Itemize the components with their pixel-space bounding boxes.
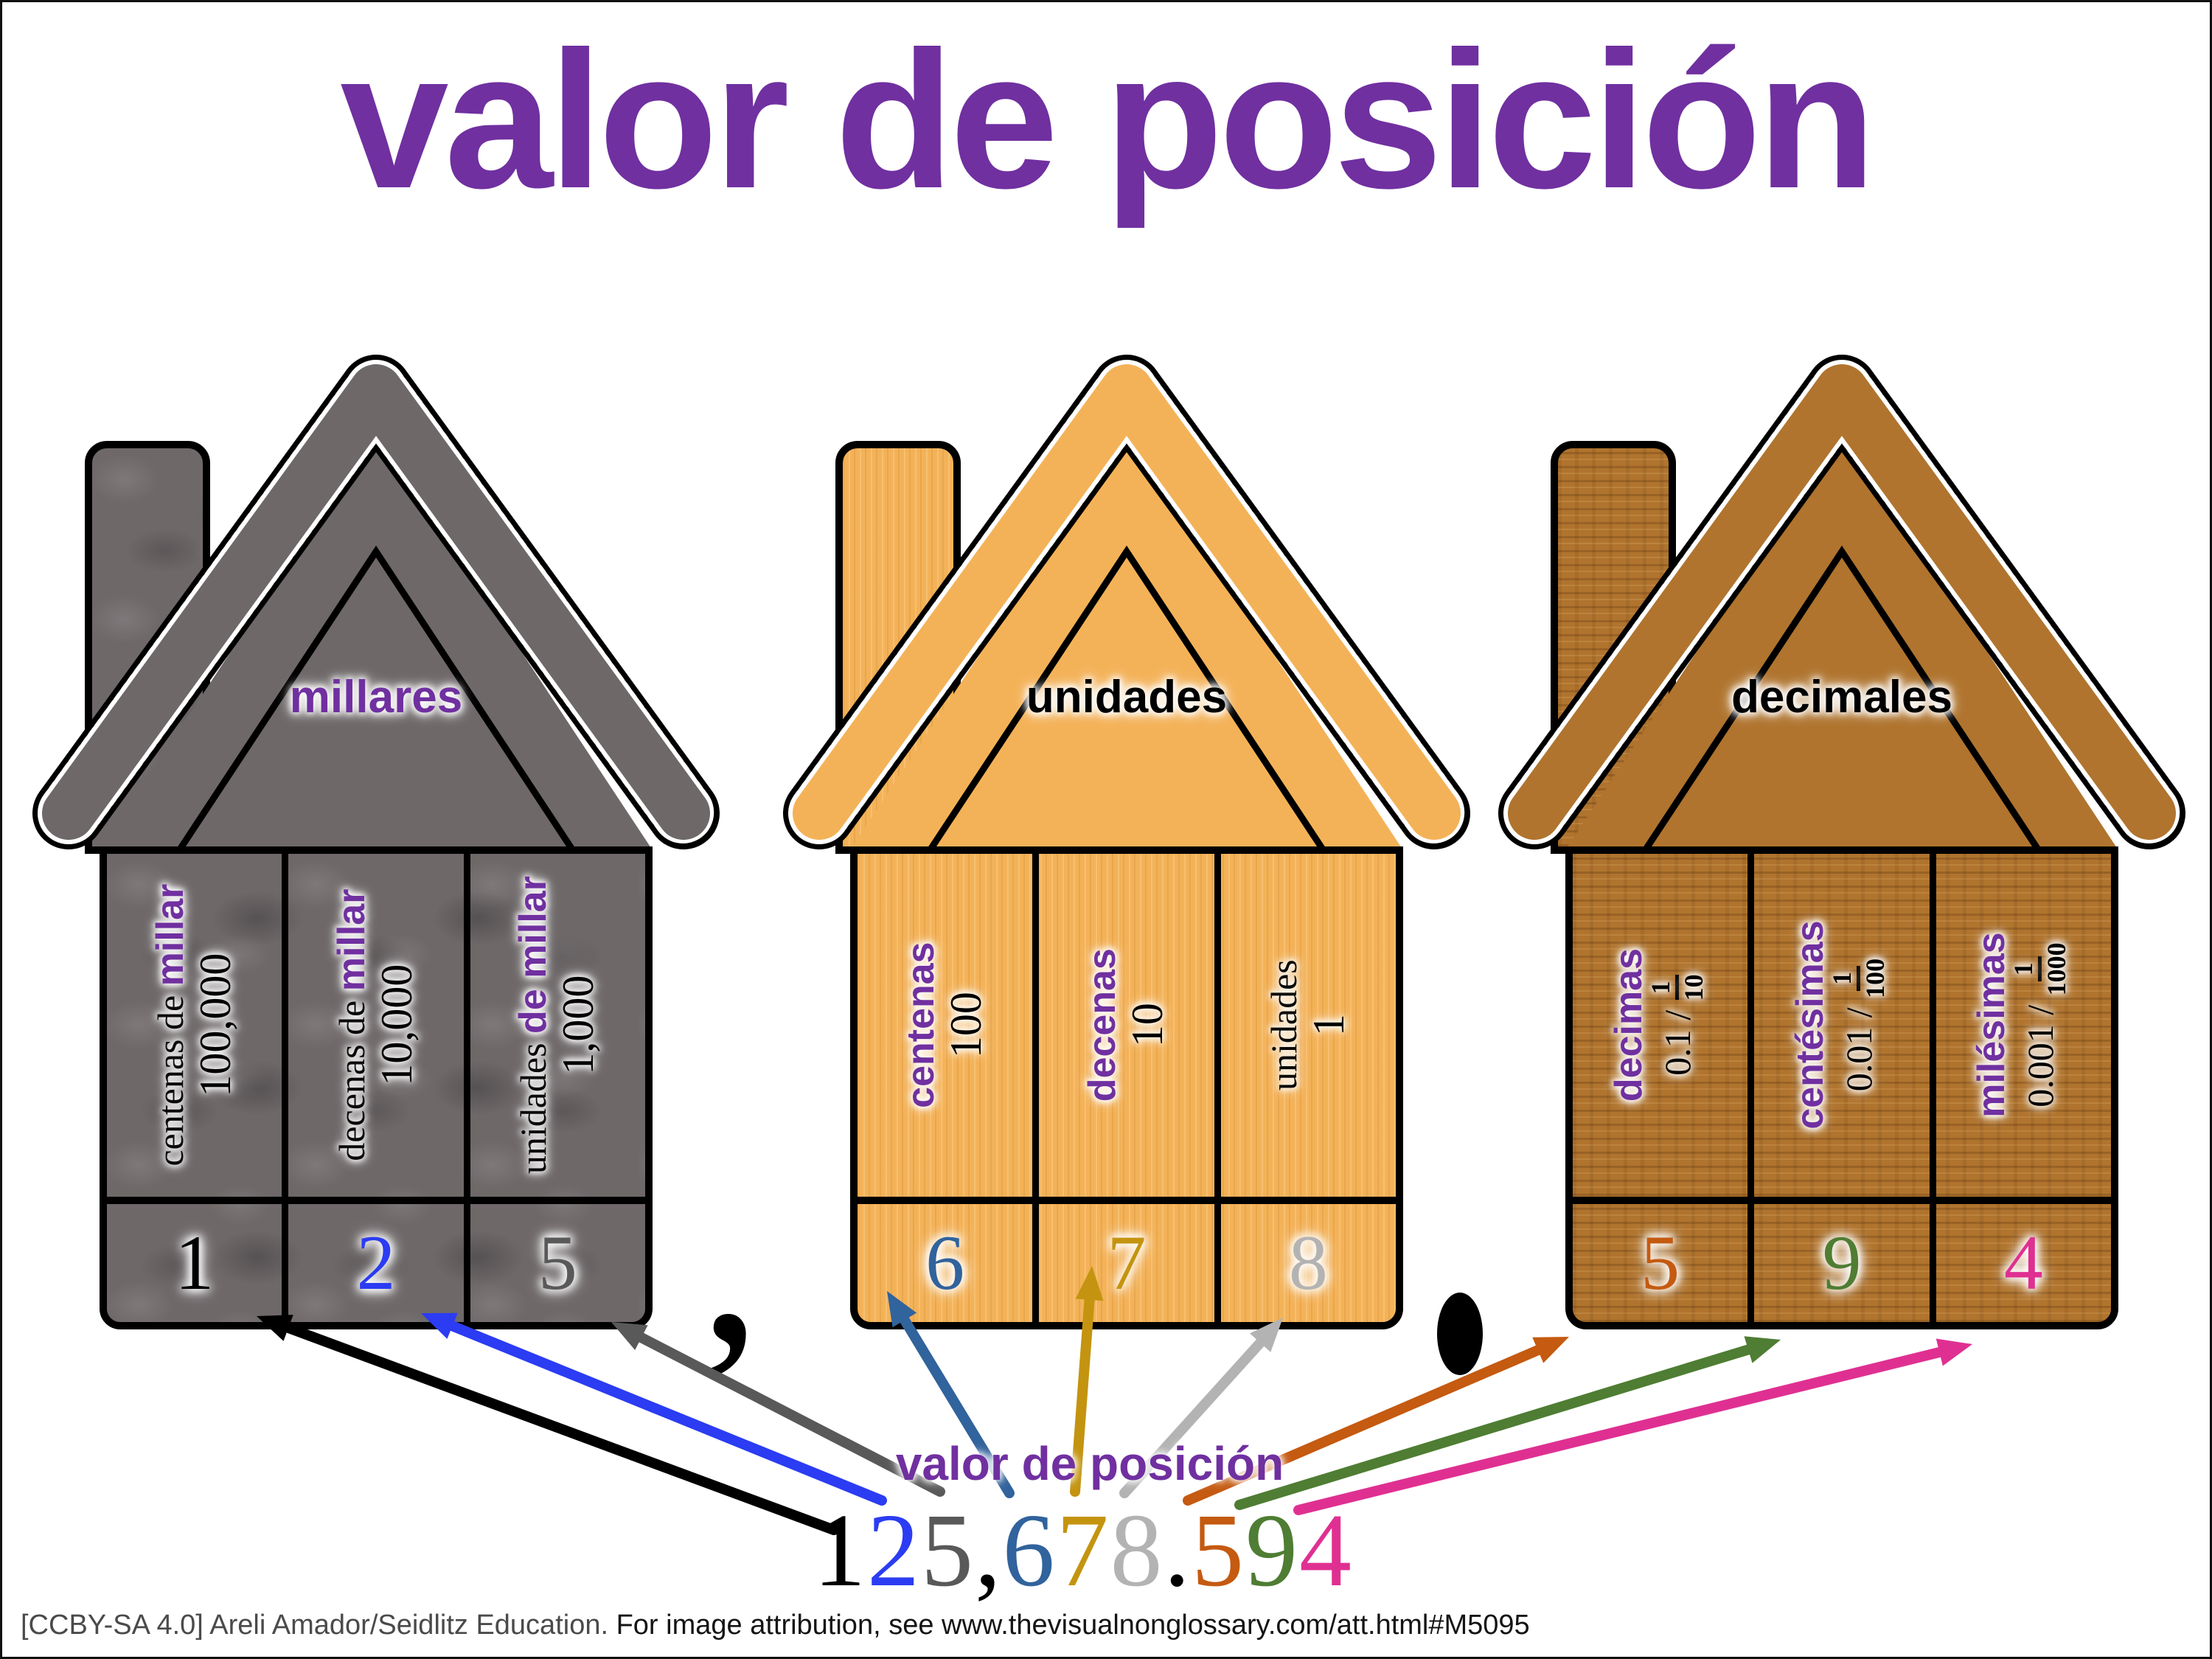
attribution-license: [CCBY-SA 4.0] Areli Amador/Seidlitz Educ… [21,1610,616,1641]
place-column-decenas-de-millar: decenas de millar 10,000 2 [282,854,463,1322]
number-digit: 8 [1110,1492,1164,1608]
place-name: milésimas [1972,933,2011,1119]
place-name: decimas [1610,948,1649,1102]
place-column-decimas: decimas 0.1 / 110 5 [1573,854,1747,1322]
arrow-head [1532,1337,1569,1363]
page-title: valor de posición [2,8,2210,233]
bottom-label: valor de posición [843,1436,1337,1491]
number-digit: 5 [921,1492,975,1608]
arrow-head [1936,1339,1972,1366]
place-column-centenas: centenas 100 6 [858,854,1032,1322]
digit-cell: 6 [858,1197,1032,1322]
house-body: centenas 100 6 decenas 10 7 unidades 1 8 [850,846,1403,1329]
decimal-point-dot [1437,1293,1483,1375]
attribution: [CCBY-SA 4.0] Areli Amador/Seidlitz Educ… [21,1610,1530,1641]
place-value-amount: 10,000 [375,964,420,1086]
digit-cell: 1 [107,1197,282,1322]
roof [1477,338,2207,854]
digit-cell: 4 [1936,1197,2111,1322]
place-value-number: 125,678.594 [813,1498,1353,1602]
place-name: unidades de millar [514,876,553,1174]
place-value-amount: 100 [944,992,989,1059]
place-value-amount: 0.01 / 1100 [1833,959,1893,1091]
fraction: 11000 [2010,943,2070,996]
house-body: decimas 0.1 / 110 5 centésimas 0.01 / 11… [1565,846,2118,1329]
place-value-amount: 0.1 / 110 [1652,975,1711,1076]
place-value-poster: valor de posición millares centenas de m… [0,0,2212,1659]
place-name: centenas de millar [151,884,190,1166]
arrow-line [1298,1350,1950,1510]
number-digit: 9 [1245,1492,1299,1608]
roof-label: unidades [762,671,1492,723]
place-name: decenas de millar [333,889,372,1161]
number-digit: 1 [813,1492,867,1608]
place-column-centesimas: centésimas 0.01 / 1100 9 [1747,854,1929,1322]
roof [11,338,741,854]
digit-cell: 5 [470,1197,645,1322]
fraction: 1100 [1829,959,1888,998]
place-column-unidades-de-millar: unidades de millar 1,000 5 [464,854,645,1322]
number-digit: 2 [867,1492,921,1608]
place-value-amount: 0.001 / 11000 [2014,943,2074,1107]
place-name: decenas [1083,948,1122,1102]
arrow-head [1744,1336,1781,1363]
roof-label: millares [11,671,741,723]
attribution-note: For image attribution, see www.thevisual… [616,1610,1530,1641]
place-column-decenas: decenas 10 7 [1032,854,1214,1322]
number-digit: 5 [1192,1492,1245,1608]
place-value-amount: 10 [1125,1004,1170,1048]
house-millares: millares centenas de millar 100,000 1 de… [11,338,741,1329]
place-value-amount: 100,000 [193,953,238,1097]
digit-cell: 5 [1573,1197,1747,1322]
roof-label: decimales [1477,671,2207,723]
fraction: 110 [1647,975,1707,1001]
digit-cell: 8 [1221,1197,1396,1322]
thousands-comma: , [699,1130,762,1381]
digit-cell: 9 [1754,1197,1929,1322]
number-digit: 4 [1299,1492,1353,1608]
house-unidades: unidades centenas 100 6 decenas 10 7 uni… [762,338,1492,1329]
digit-cell: 7 [1039,1197,1214,1322]
house-body: centenas de millar 100,000 1 decenas de … [100,846,653,1329]
place-name: centenas [902,942,941,1108]
place-column-milesimas: milésimas 0.001 / 11000 4 [1930,854,2111,1322]
house-decimales: decimales decimas 0.1 / 110 5 centésimas… [1477,338,2207,1329]
place-value-amount: 1,000 [556,975,601,1075]
digit-cell: 2 [288,1197,463,1322]
number-digit: 6 [1003,1492,1057,1608]
arrow-line [443,1322,882,1500]
place-name: centésimas [1791,921,1830,1130]
number-digit: 7 [1057,1492,1110,1608]
place-column-centenas-de-millar: centenas de millar 100,000 1 [107,854,282,1322]
place-name: unidades [1265,960,1304,1091]
number-digit: . [1164,1492,1192,1608]
roof [762,338,1492,854]
place-column-unidades: unidades 1 8 [1214,854,1396,1322]
number-digit: , [975,1492,1003,1608]
place-value-amount: 1 [1307,1015,1352,1037]
